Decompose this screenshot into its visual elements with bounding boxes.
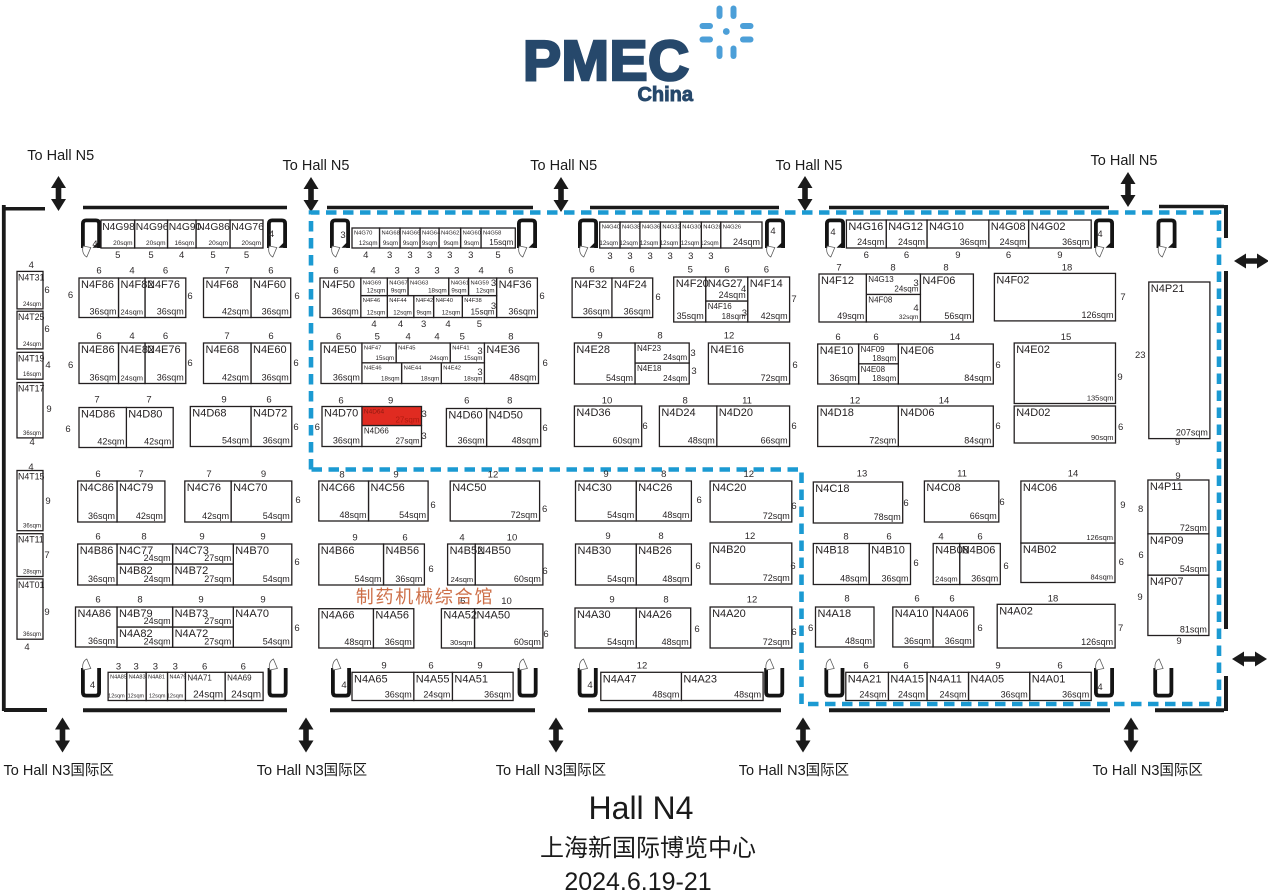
svg-text:27sqm: 27sqm <box>395 416 419 425</box>
svg-text:N4A11: N4A11 <box>929 673 962 685</box>
svg-text:3: 3 <box>387 250 392 261</box>
svg-text:6: 6 <box>464 396 469 407</box>
svg-text:10: 10 <box>602 396 613 407</box>
svg-text:4: 4 <box>478 266 483 277</box>
svg-text:N4B26: N4B26 <box>638 545 672 557</box>
svg-text:32sqm: 32sqm <box>899 314 919 321</box>
svg-text:24sqm: 24sqm <box>231 690 261 701</box>
svg-text:12sqm: 12sqm <box>660 240 679 247</box>
svg-text:N4E86: N4E86 <box>81 344 115 356</box>
svg-text:6: 6 <box>294 291 299 302</box>
svg-text:N4A70: N4A70 <box>235 608 269 620</box>
svg-text:36sqm: 36sqm <box>88 636 115 646</box>
svg-text:6: 6 <box>68 290 73 301</box>
svg-text:6: 6 <box>338 396 343 407</box>
svg-text:66sqm: 66sqm <box>970 511 997 521</box>
svg-text:54sqm: 54sqm <box>607 574 634 584</box>
svg-text:N4D68: N4D68 <box>192 408 226 420</box>
svg-text:N4A51: N4A51 <box>454 673 488 685</box>
svg-text:N4F08: N4F08 <box>868 295 893 304</box>
svg-text:N4D72: N4D72 <box>253 408 287 420</box>
svg-text:To Hall N5: To Hall N5 <box>530 158 597 174</box>
svg-text:9: 9 <box>221 395 226 406</box>
svg-text:N4F38: N4F38 <box>464 298 481 304</box>
svg-text:36sqm: 36sqm <box>89 307 116 317</box>
svg-text:24sqm: 24sqm <box>733 237 760 247</box>
svg-text:72sqm: 72sqm <box>763 573 790 583</box>
svg-text:24sqm: 24sqm <box>939 690 966 700</box>
svg-text:54sqm: 54sqm <box>399 510 426 520</box>
svg-text:4: 4 <box>370 266 375 277</box>
svg-text:12sqm: 12sqm <box>128 694 145 700</box>
svg-text:6: 6 <box>791 421 796 432</box>
svg-text:N4G60: N4G60 <box>463 231 481 237</box>
svg-text:N4T17: N4T17 <box>18 384 45 394</box>
svg-text:60sqm: 60sqm <box>613 436 640 446</box>
svg-text:18: 18 <box>1062 263 1073 274</box>
svg-text:6: 6 <box>1057 661 1062 672</box>
svg-text:60sqm: 60sqm <box>514 574 541 584</box>
svg-text:9: 9 <box>381 661 386 672</box>
svg-text:6: 6 <box>835 332 840 343</box>
svg-text:2024.6.19-21: 2024.6.19-21 <box>564 868 711 895</box>
svg-text:N4C50: N4C50 <box>452 482 486 494</box>
svg-text:3: 3 <box>153 662 158 673</box>
svg-text:上海新国际博览中心: 上海新国际博览中心 <box>540 835 756 862</box>
svg-text:36sqm: 36sqm <box>1001 690 1028 700</box>
svg-text:7: 7 <box>1118 623 1123 634</box>
svg-text:18sqm: 18sqm <box>872 374 896 383</box>
svg-text:6: 6 <box>629 265 634 276</box>
svg-text:6: 6 <box>904 250 909 261</box>
svg-text:6: 6 <box>268 331 273 342</box>
svg-text:3: 3 <box>454 266 459 277</box>
svg-text:36sqm: 36sqm <box>23 524 41 530</box>
svg-text:N4F23: N4F23 <box>637 344 662 353</box>
svg-text:4: 4 <box>45 360 50 371</box>
svg-text:36sqm: 36sqm <box>157 307 184 317</box>
svg-text:9sqm: 9sqm <box>443 240 458 247</box>
svg-text:72sqm: 72sqm <box>763 511 790 521</box>
svg-text:5: 5 <box>460 332 465 343</box>
svg-text:6: 6 <box>995 421 1000 432</box>
svg-text:8: 8 <box>137 595 142 606</box>
svg-text:N4A79: N4A79 <box>170 674 187 680</box>
svg-text:N4B18: N4B18 <box>815 545 849 557</box>
svg-text:48sqm: 48sqm <box>512 436 539 446</box>
svg-text:42sqm: 42sqm <box>222 307 249 317</box>
svg-text:48sqm: 48sqm <box>845 636 872 646</box>
svg-text:3: 3 <box>173 662 178 673</box>
svg-text:3: 3 <box>447 250 452 261</box>
svg-text:6: 6 <box>95 469 100 480</box>
svg-text:4: 4 <box>406 332 411 343</box>
svg-text:42sqm: 42sqm <box>222 373 249 383</box>
svg-text:N4F44: N4F44 <box>389 298 407 304</box>
svg-text:N4F09: N4F09 <box>861 345 886 354</box>
svg-text:N4D50: N4D50 <box>489 410 523 422</box>
svg-text:N4G98: N4G98 <box>102 222 135 233</box>
svg-text:N4D24: N4D24 <box>661 407 695 419</box>
svg-text:36sqm: 36sqm <box>88 511 115 521</box>
svg-text:Hall N4: Hall N4 <box>589 790 694 826</box>
svg-text:9sqm: 9sqm <box>383 240 398 247</box>
svg-text:84sqm: 84sqm <box>1090 573 1113 582</box>
svg-text:N4E10: N4E10 <box>820 345 854 357</box>
svg-text:To Hall N3国际区: To Hall N3国际区 <box>4 762 114 779</box>
svg-text:27sqm: 27sqm <box>204 553 231 563</box>
svg-text:N4A85: N4A85 <box>110 674 127 680</box>
svg-text:84sqm: 84sqm <box>964 436 991 446</box>
svg-text:36sqm: 36sqm <box>263 436 290 446</box>
svg-text:N4D18: N4D18 <box>820 407 854 419</box>
svg-text:3: 3 <box>395 266 400 277</box>
svg-text:6: 6 <box>187 358 192 369</box>
svg-text:9: 9 <box>199 532 204 543</box>
svg-text:4: 4 <box>1097 682 1102 693</box>
svg-text:8: 8 <box>508 332 513 343</box>
svg-text:72sqm: 72sqm <box>869 436 896 446</box>
svg-text:4: 4 <box>913 303 918 314</box>
svg-text:72sqm: 72sqm <box>761 373 788 383</box>
svg-text:72sqm: 72sqm <box>1180 523 1207 533</box>
svg-text:N4B08: N4B08 <box>935 545 969 557</box>
svg-text:48sqm: 48sqm <box>509 373 536 383</box>
svg-text:4: 4 <box>129 331 134 342</box>
svg-text:9: 9 <box>46 404 51 415</box>
svg-text:N4G59: N4G59 <box>471 281 489 287</box>
svg-text:42sqm: 42sqm <box>761 311 788 321</box>
svg-text:36sqm: 36sqm <box>23 431 41 437</box>
svg-text:6: 6 <box>873 332 878 343</box>
svg-text:7: 7 <box>94 395 99 406</box>
svg-text:N4G62: N4G62 <box>441 231 459 237</box>
svg-text:36sqm: 36sqm <box>971 574 998 584</box>
svg-text:N4G30: N4G30 <box>682 225 700 231</box>
svg-text:8: 8 <box>339 470 344 481</box>
svg-text:N4A81: N4A81 <box>148 674 165 680</box>
svg-text:6: 6 <box>764 265 769 276</box>
svg-text:4: 4 <box>269 229 274 240</box>
svg-text:7: 7 <box>138 469 143 480</box>
svg-text:36sqm: 36sqm <box>333 436 360 446</box>
svg-text:N4A23: N4A23 <box>683 673 717 685</box>
svg-text:N4A71: N4A71 <box>187 673 212 682</box>
svg-text:N4A50: N4A50 <box>477 610 511 622</box>
svg-text:6: 6 <box>724 265 729 276</box>
svg-text:9: 9 <box>393 470 398 481</box>
svg-text:126sqm: 126sqm <box>1086 533 1113 542</box>
svg-text:3: 3 <box>648 251 653 262</box>
svg-text:5: 5 <box>244 250 249 261</box>
svg-text:4: 4 <box>741 284 746 295</box>
svg-text:N4G10: N4G10 <box>929 221 964 233</box>
svg-text:7: 7 <box>146 395 151 406</box>
svg-text:4: 4 <box>445 319 450 330</box>
svg-text:N4B20: N4B20 <box>712 544 746 556</box>
svg-text:8: 8 <box>844 594 849 605</box>
svg-text:12: 12 <box>637 661 648 672</box>
svg-text:6: 6 <box>241 662 246 673</box>
svg-text:6: 6 <box>977 532 982 543</box>
svg-text:48sqm: 48sqm <box>734 690 761 700</box>
svg-text:24sqm: 24sqm <box>423 690 450 700</box>
svg-text:N4A47: N4A47 <box>603 673 637 685</box>
svg-text:27sqm: 27sqm <box>204 636 231 646</box>
svg-text:3: 3 <box>421 431 426 442</box>
svg-text:N4E82: N4E82 <box>121 344 155 356</box>
svg-text:12sqm: 12sqm <box>640 240 659 247</box>
svg-text:12sqm: 12sqm <box>367 288 386 295</box>
svg-text:9: 9 <box>388 396 393 407</box>
svg-text:N4C18: N4C18 <box>815 483 849 495</box>
svg-text:24sqm: 24sqm <box>859 690 886 700</box>
svg-text:5: 5 <box>495 250 500 261</box>
svg-text:24sqm: 24sqm <box>23 342 41 348</box>
svg-text:China: China <box>637 84 693 106</box>
svg-text:N4D60: N4D60 <box>448 410 482 422</box>
svg-text:N4E46: N4E46 <box>364 365 382 371</box>
svg-text:24sqm: 24sqm <box>144 616 171 626</box>
svg-text:N4F06: N4F06 <box>922 275 955 287</box>
svg-text:42sqm: 42sqm <box>202 511 229 521</box>
svg-text:6: 6 <box>336 332 341 343</box>
svg-text:8: 8 <box>141 532 146 543</box>
svg-text:To Hall N5: To Hall N5 <box>1091 153 1158 169</box>
svg-text:9: 9 <box>1120 500 1125 511</box>
svg-text:N4P21: N4P21 <box>1151 283 1185 295</box>
svg-text:28sqm: 28sqm <box>23 570 41 576</box>
svg-text:N4D70: N4D70 <box>324 408 358 420</box>
svg-text:24sqm: 24sqm <box>120 374 143 383</box>
svg-text:54sqm: 54sqm <box>263 574 290 584</box>
svg-text:24sqm: 24sqm <box>23 302 41 308</box>
svg-text:36sqm: 36sqm <box>88 574 115 584</box>
svg-text:N4F60: N4F60 <box>253 279 286 291</box>
svg-text:48sqm: 48sqm <box>662 574 689 584</box>
svg-text:6: 6 <box>428 661 433 672</box>
svg-text:6: 6 <box>863 661 868 672</box>
svg-text:N4B52: N4B52 <box>450 545 484 557</box>
svg-text:54sqm: 54sqm <box>222 436 249 446</box>
svg-text:6: 6 <box>268 266 273 277</box>
svg-text:N4G63: N4G63 <box>410 281 428 287</box>
svg-text:42sqm: 42sqm <box>97 437 124 447</box>
svg-text:6: 6 <box>202 662 207 673</box>
svg-text:23: 23 <box>1135 350 1146 361</box>
svg-text:6: 6 <box>539 291 544 302</box>
svg-text:N4G13: N4G13 <box>868 275 894 284</box>
svg-text:7: 7 <box>206 469 211 480</box>
svg-text:90sqm: 90sqm <box>1091 433 1114 442</box>
svg-text:12sqm: 12sqm <box>681 240 700 247</box>
svg-text:36sqm: 36sqm <box>830 373 857 383</box>
svg-text:36sqm: 36sqm <box>157 373 184 383</box>
svg-text:12: 12 <box>724 331 735 342</box>
svg-text:54sqm: 54sqm <box>1180 564 1207 574</box>
svg-text:N4D64: N4D64 <box>364 409 385 416</box>
svg-text:6: 6 <box>792 360 797 371</box>
svg-text:N4G76: N4G76 <box>231 222 264 233</box>
svg-text:N4G38: N4G38 <box>622 225 640 231</box>
svg-text:7: 7 <box>224 331 229 342</box>
svg-text:24sqm: 24sqm <box>857 237 884 247</box>
svg-text:5: 5 <box>115 250 120 261</box>
svg-text:N4B56: N4B56 <box>386 545 420 557</box>
svg-text:6: 6 <box>294 557 299 568</box>
svg-text:36sqm: 36sqm <box>1062 237 1089 247</box>
svg-text:5: 5 <box>375 332 380 343</box>
svg-text:42sqm: 42sqm <box>144 437 171 447</box>
svg-text:N4B70: N4B70 <box>235 545 269 557</box>
svg-text:7: 7 <box>791 294 796 305</box>
svg-text:6: 6 <box>402 533 407 544</box>
svg-text:36sqm: 36sqm <box>904 636 931 646</box>
svg-text:N4A15: N4A15 <box>890 673 924 685</box>
svg-text:N4F16: N4F16 <box>708 302 733 311</box>
svg-text:6: 6 <box>995 360 1000 371</box>
svg-text:4: 4 <box>341 680 346 691</box>
svg-text:6: 6 <box>95 595 100 606</box>
svg-text:6: 6 <box>428 564 433 575</box>
svg-text:24sqm: 24sqm <box>430 355 449 362</box>
svg-text:N4B73: N4B73 <box>175 608 209 620</box>
svg-text:N4E36: N4E36 <box>486 344 520 356</box>
svg-text:48sqm: 48sqm <box>344 637 371 647</box>
svg-text:N4T11: N4T11 <box>18 535 44 545</box>
svg-text:14: 14 <box>939 396 950 407</box>
svg-text:36sqm: 36sqm <box>881 574 908 584</box>
svg-text:9: 9 <box>1175 437 1180 448</box>
svg-text:3: 3 <box>407 250 412 261</box>
svg-text:8: 8 <box>661 469 666 480</box>
svg-text:6: 6 <box>295 495 300 506</box>
svg-text:8: 8 <box>507 396 512 407</box>
svg-text:36sqm: 36sqm <box>23 632 41 638</box>
svg-text:9: 9 <box>1176 636 1181 647</box>
svg-text:4: 4 <box>179 250 184 261</box>
svg-text:N4G16: N4G16 <box>848 221 883 233</box>
svg-text:24sqm: 24sqm <box>1000 237 1027 247</box>
svg-text:N4C06: N4C06 <box>1023 482 1057 494</box>
svg-text:N4A20: N4A20 <box>712 608 746 620</box>
svg-text:24sqm: 24sqm <box>898 690 925 700</box>
svg-text:6: 6 <box>294 623 299 634</box>
svg-text:N4G70: N4G70 <box>354 231 372 237</box>
svg-text:36sqm: 36sqm <box>484 690 511 700</box>
svg-text:6: 6 <box>914 594 919 605</box>
svg-text:24sqm: 24sqm <box>663 374 687 383</box>
svg-text:8: 8 <box>657 331 662 342</box>
svg-text:N4F46: N4F46 <box>363 298 380 304</box>
svg-text:12sqm: 12sqm <box>442 310 461 317</box>
svg-text:N4A52: N4A52 <box>443 610 477 622</box>
svg-text:To Hall N3国际区: To Hall N3国际区 <box>496 762 606 779</box>
svg-text:6: 6 <box>96 266 101 277</box>
svg-text:N4E68: N4E68 <box>206 344 240 356</box>
svg-text:14: 14 <box>1068 469 1079 480</box>
svg-text:N4F41: N4F41 <box>452 346 469 352</box>
svg-text:24sqm: 24sqm <box>144 636 171 646</box>
svg-text:N4A65: N4A65 <box>354 673 388 685</box>
svg-text:4: 4 <box>129 266 134 277</box>
svg-text:48sqm: 48sqm <box>662 637 689 647</box>
svg-text:7: 7 <box>224 266 229 277</box>
svg-text:6: 6 <box>694 624 699 635</box>
svg-text:N4E42: N4E42 <box>443 365 461 371</box>
svg-text:18sqm: 18sqm <box>421 376 440 383</box>
svg-text:12sqm: 12sqm <box>599 240 618 247</box>
svg-text:54sqm: 54sqm <box>607 510 634 520</box>
svg-text:N4C26: N4C26 <box>638 482 672 494</box>
svg-text:42sqm: 42sqm <box>136 511 163 521</box>
svg-text:N4A55: N4A55 <box>416 673 450 685</box>
svg-text:36sqm: 36sqm <box>458 436 485 446</box>
svg-text:9: 9 <box>352 533 357 544</box>
svg-text:7: 7 <box>1120 292 1125 303</box>
svg-text:6: 6 <box>95 532 100 543</box>
svg-text:36sqm: 36sqm <box>385 637 412 647</box>
svg-text:6: 6 <box>913 558 918 569</box>
svg-text:N4B10: N4B10 <box>871 545 905 557</box>
svg-text:N4A02: N4A02 <box>999 605 1033 617</box>
svg-text:6: 6 <box>864 250 869 261</box>
svg-text:N4E28: N4E28 <box>576 344 610 356</box>
svg-text:N4A69: N4A69 <box>227 673 252 682</box>
svg-text:N4E44: N4E44 <box>404 365 423 371</box>
svg-text:N4C86: N4C86 <box>80 482 114 494</box>
svg-text:36sqm: 36sqm <box>945 636 972 646</box>
svg-text:24sqm: 24sqm <box>144 553 171 563</box>
svg-text:3: 3 <box>627 251 632 262</box>
svg-text:N4B86: N4B86 <box>80 545 114 557</box>
svg-text:3: 3 <box>913 278 918 289</box>
svg-text:48sqm: 48sqm <box>688 436 715 446</box>
svg-text:N4G64: N4G64 <box>422 231 441 237</box>
svg-text:N4G58: N4G58 <box>483 231 501 237</box>
svg-text:54sqm: 54sqm <box>263 511 290 521</box>
svg-text:N4T25: N4T25 <box>18 312 45 322</box>
svg-text:36sqm: 36sqm <box>508 307 535 317</box>
svg-text:14: 14 <box>950 332 961 343</box>
svg-text:36sqm: 36sqm <box>583 307 610 317</box>
svg-text:8: 8 <box>1138 504 1143 515</box>
svg-text:4: 4 <box>587 680 592 691</box>
svg-text:N4D20: N4D20 <box>719 407 753 419</box>
svg-text:N4F12: N4F12 <box>821 275 854 287</box>
svg-text:N4F40: N4F40 <box>436 298 453 304</box>
svg-text:126sqm: 126sqm <box>1081 310 1113 320</box>
svg-text:4: 4 <box>371 319 376 330</box>
svg-text:10: 10 <box>507 533 518 544</box>
svg-text:N4E18: N4E18 <box>637 364 662 373</box>
svg-text:12: 12 <box>488 470 499 481</box>
svg-text:N4B02: N4B02 <box>1023 544 1057 556</box>
svg-text:48sqm: 48sqm <box>652 690 679 700</box>
svg-text:9: 9 <box>45 496 50 507</box>
svg-text:N4G32: N4G32 <box>662 225 680 231</box>
svg-text:6: 6 <box>999 497 1004 508</box>
svg-text:12: 12 <box>747 595 758 606</box>
svg-text:N4G68: N4G68 <box>382 231 400 237</box>
svg-text:6: 6 <box>266 395 271 406</box>
svg-text:4: 4 <box>459 533 464 544</box>
svg-text:56sqm: 56sqm <box>944 311 971 321</box>
svg-text:24sqm: 24sqm <box>120 308 143 317</box>
svg-text:16sqm: 16sqm <box>23 372 41 378</box>
svg-text:N4G69: N4G69 <box>363 281 381 287</box>
svg-text:5: 5 <box>148 250 153 261</box>
